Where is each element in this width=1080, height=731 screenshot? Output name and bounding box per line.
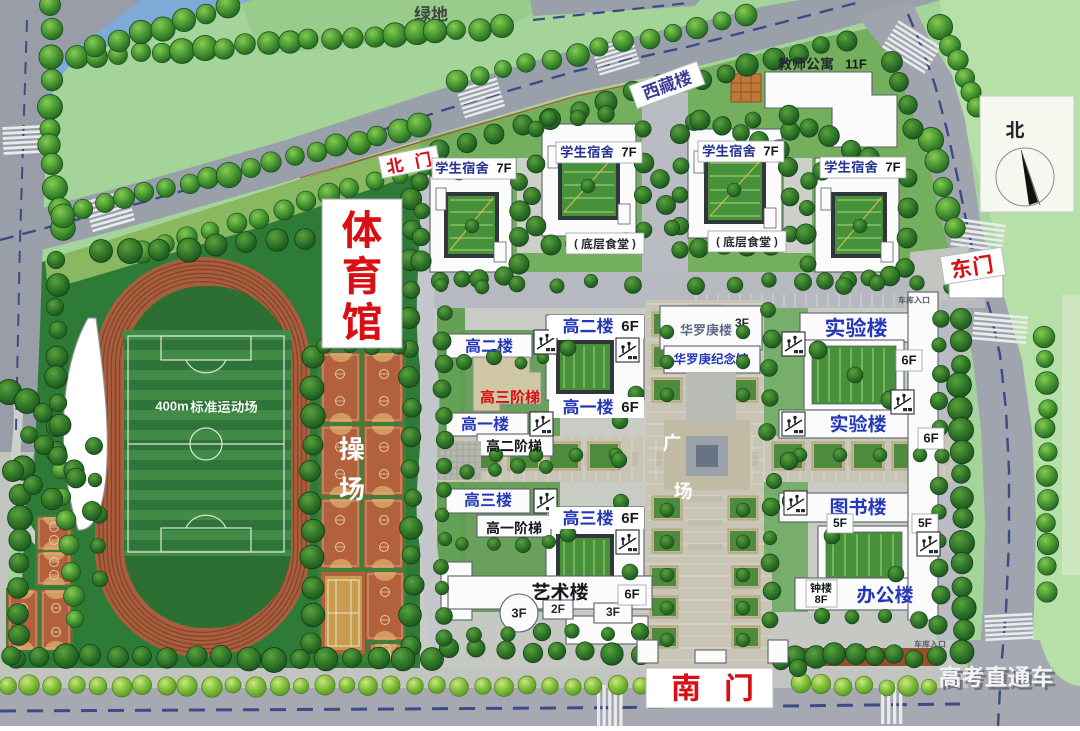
svg-text:6F: 6F xyxy=(621,399,639,416)
svg-text:3F: 3F xyxy=(511,605,526,620)
svg-text:): ) xyxy=(774,236,778,248)
svg-text:6F: 6F xyxy=(621,510,639,527)
svg-text:6F: 6F xyxy=(624,586,639,601)
svg-text:6F: 6F xyxy=(901,352,916,367)
svg-text:11F: 11F xyxy=(845,56,867,71)
svg-text:3F: 3F xyxy=(606,605,620,619)
svg-text:5F: 5F xyxy=(918,516,932,530)
svg-text:400m: 400m xyxy=(155,398,188,413)
svg-text:7F: 7F xyxy=(496,160,511,175)
svg-text:7F: 7F xyxy=(763,143,778,158)
svg-text:2F: 2F xyxy=(551,602,565,616)
svg-text:(: ( xyxy=(716,236,720,248)
svg-text:(: ( xyxy=(574,238,578,250)
svg-text:): ) xyxy=(632,238,636,250)
svg-text:8F: 8F xyxy=(815,594,828,606)
svg-text:6F: 6F xyxy=(923,430,938,445)
svg-text:7F: 7F xyxy=(885,159,900,174)
svg-text:6F: 6F xyxy=(621,318,639,335)
svg-text:7F: 7F xyxy=(621,144,636,159)
svg-text:5F: 5F xyxy=(833,516,847,530)
